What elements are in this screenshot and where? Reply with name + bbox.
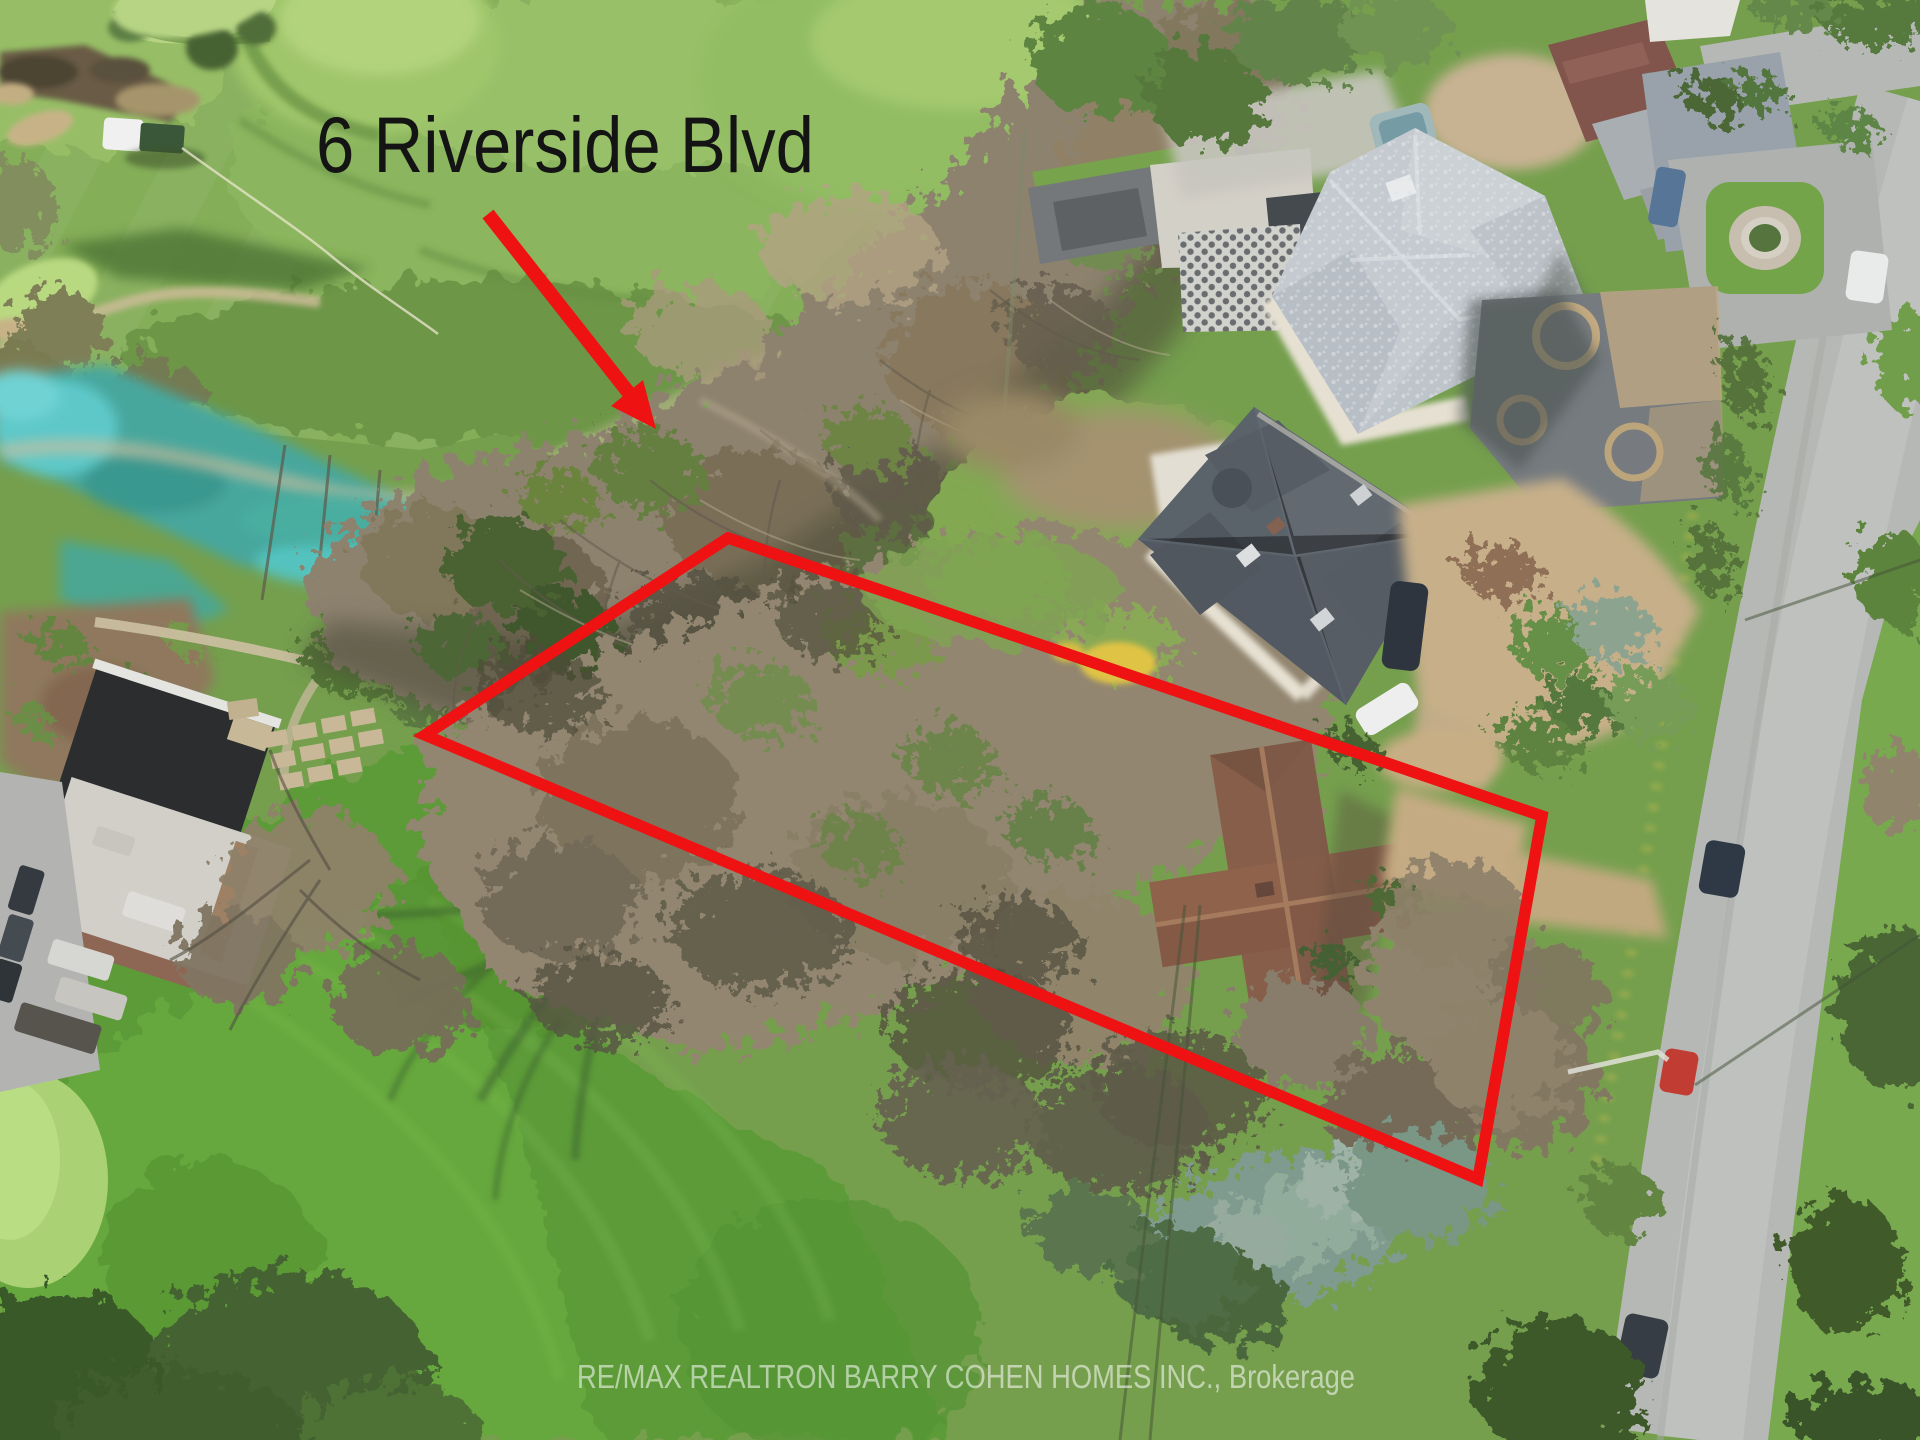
svg-text:RE/MAX REALTRON BARRY COHEN HO: RE/MAX REALTRON BARRY COHEN HOMES INC., … [577,1358,1355,1395]
svg-text:6 Riverside Blvd: 6 Riverside Blvd [316,100,814,189]
